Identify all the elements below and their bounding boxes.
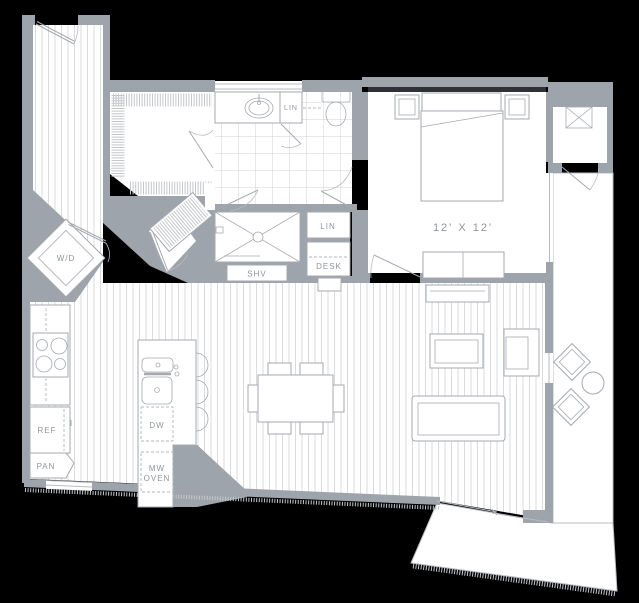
dining-chair [268, 421, 291, 434]
pantry-label: PAN [37, 462, 56, 471]
dining-chair [300, 363, 323, 376]
microwave-label-1: MW [149, 464, 165, 473]
floor-plan: LIN SHV LIN DES [0, 0, 639, 603]
washer-dryer-label: W/D [57, 254, 76, 263]
dining-chair [300, 421, 323, 434]
vanity-counter [215, 92, 280, 123]
dining-table [258, 375, 333, 422]
dining-chair [268, 363, 291, 376]
desk-chair [318, 278, 341, 291]
tv-console [426, 285, 489, 302]
dishwasher-label: DW [149, 421, 164, 430]
shower [215, 212, 300, 262]
desk-label: DESK [316, 262, 342, 271]
linen-bedroom-label: LIN [320, 222, 335, 231]
microwave-label-2: OVEN [144, 474, 171, 483]
shelves-label: SHV [247, 270, 266, 279]
headboard [422, 93, 501, 111]
bedroom-dimensions-label: 12' X 12' [433, 222, 493, 234]
refrigerator-label: REF [38, 426, 57, 435]
dining-chair [332, 385, 344, 412]
stove [33, 333, 68, 377]
floor-plan-drawing: LIN SHV LIN DES [0, 0, 639, 603]
walk-in-closet [110, 92, 215, 196]
bedroom-window-band [368, 87, 546, 92]
patio-table [582, 372, 604, 394]
linen-bath-label: LIN [284, 105, 298, 112]
bath-door-gap [205, 183, 215, 210]
dining-chair [248, 385, 259, 412]
bench [423, 252, 504, 278]
shower-drain [253, 232, 263, 242]
